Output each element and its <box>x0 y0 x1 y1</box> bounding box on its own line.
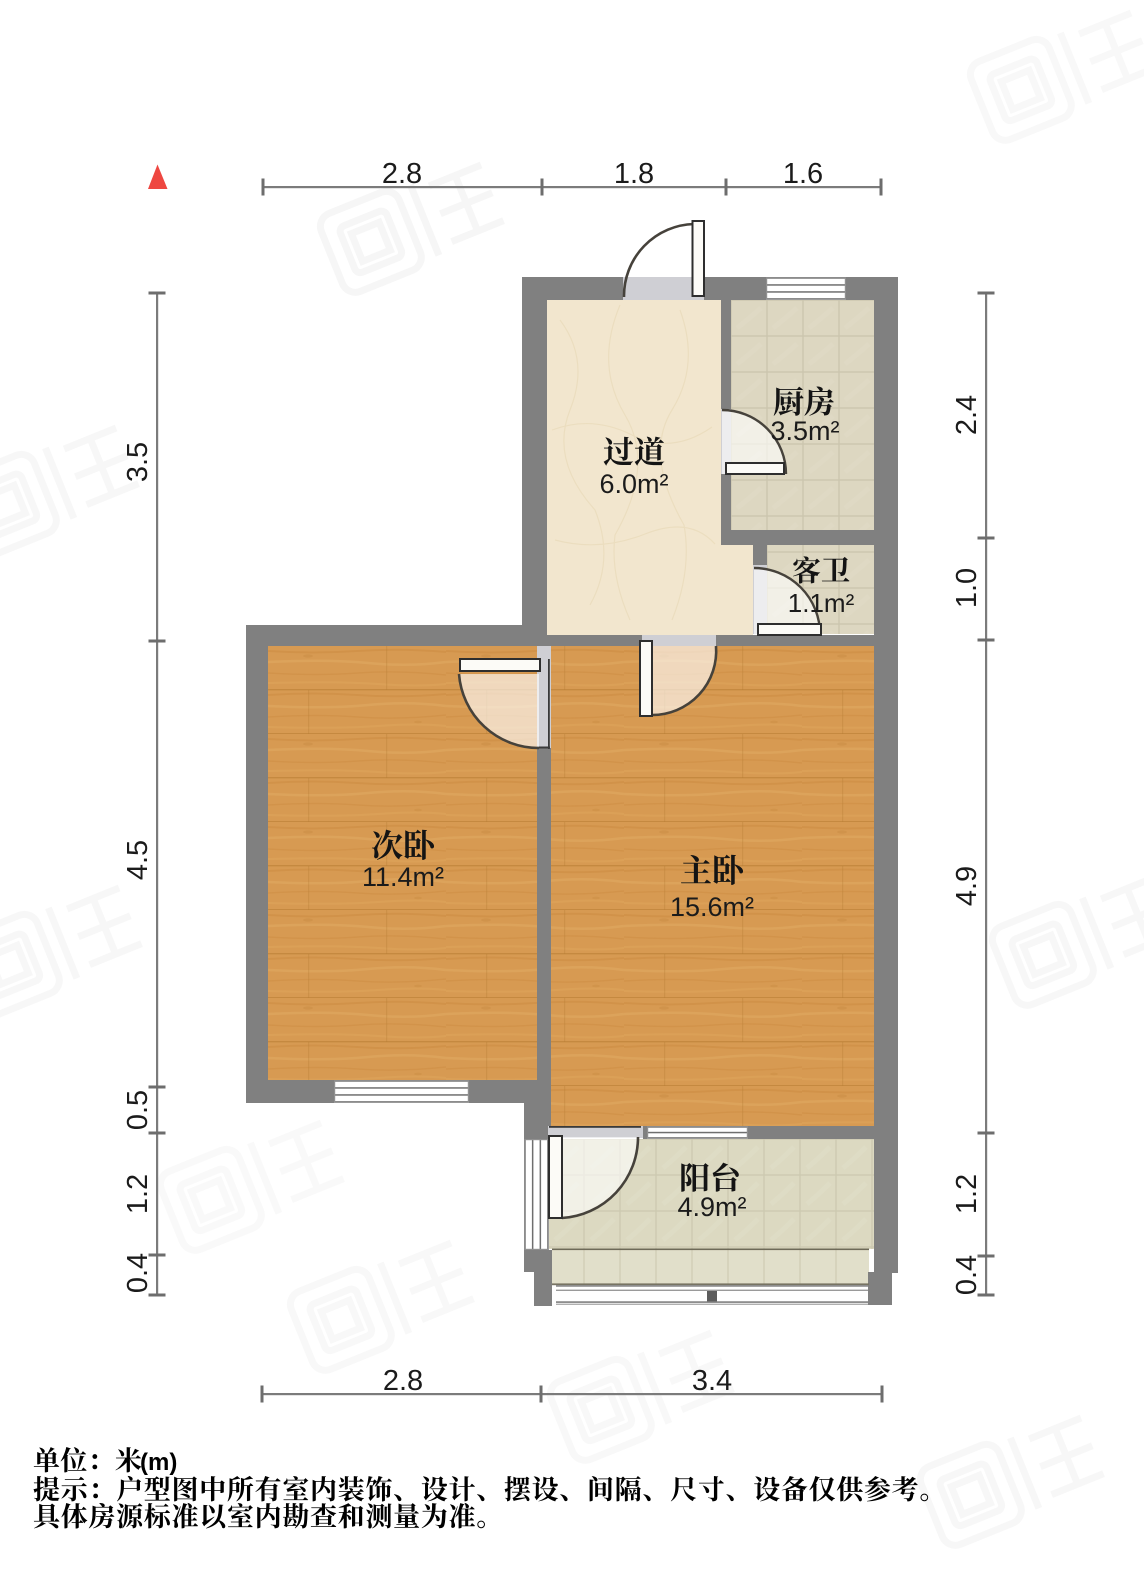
svg-text:4.9m²: 4.9m² <box>677 1192 746 1222</box>
svg-text:4.5: 4.5 <box>122 840 154 880</box>
svg-text:2.8: 2.8 <box>383 1365 423 1397</box>
svg-text:1.2: 1.2 <box>122 1174 154 1214</box>
svg-text:3.4: 3.4 <box>692 1365 732 1397</box>
svg-text:0.5: 0.5 <box>122 1090 154 1130</box>
svg-text:15.6m²: 15.6m² <box>670 892 754 922</box>
svg-text:1.8: 1.8 <box>614 158 654 190</box>
svg-text:11.4m²: 11.4m² <box>362 862 444 892</box>
svg-text:3.5m²: 3.5m² <box>770 416 839 446</box>
svg-text:1.1m²: 1.1m² <box>788 588 855 618</box>
svg-text:2.4: 2.4 <box>951 395 983 435</box>
svg-text:2.8: 2.8 <box>382 158 422 190</box>
svg-text:4.9: 4.9 <box>951 866 983 906</box>
svg-text:0.4: 0.4 <box>122 1253 154 1293</box>
svg-text:0.4: 0.4 <box>951 1255 983 1295</box>
svg-text:3.5: 3.5 <box>122 442 154 482</box>
svg-text:1.0: 1.0 <box>951 568 983 608</box>
svg-text:1.2: 1.2 <box>951 1174 983 1214</box>
svg-text:6.0m²: 6.0m² <box>599 469 668 499</box>
svg-text:(m): (m) <box>140 1449 177 1476</box>
svg-text:1.6: 1.6 <box>783 158 823 190</box>
